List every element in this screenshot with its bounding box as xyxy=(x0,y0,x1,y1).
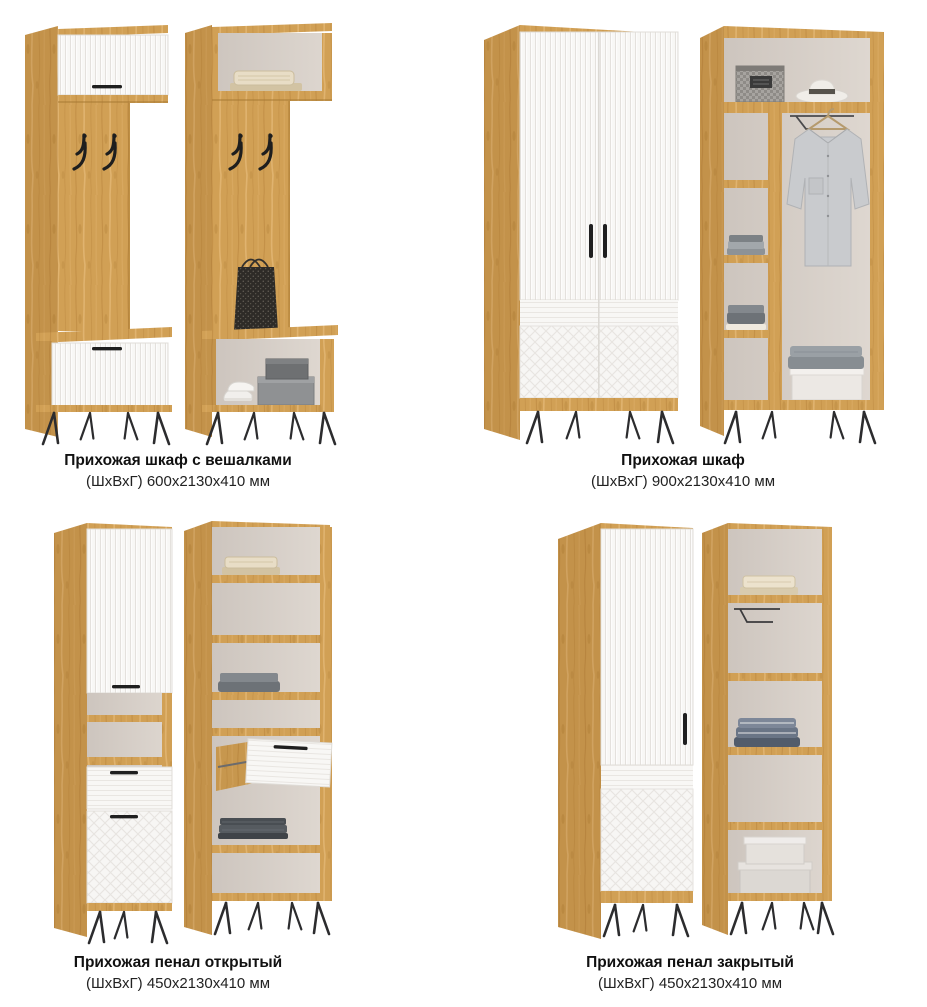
base xyxy=(728,893,832,901)
top-cabinet xyxy=(58,25,168,103)
divider xyxy=(768,113,782,400)
box-with-towels xyxy=(788,346,864,400)
hairpin-legs xyxy=(207,413,335,444)
door-handle-left xyxy=(589,224,593,258)
product-dimensions: (ШхВхГ) 450х2130х410 мм xyxy=(28,974,328,994)
hairpin-legs xyxy=(89,912,167,943)
product-card-penal-open[interactable] xyxy=(50,515,340,947)
hairpin-legs xyxy=(215,903,329,934)
doors xyxy=(520,32,678,398)
base xyxy=(520,398,678,411)
product-title: Прихожая пенал закрытый xyxy=(540,953,840,973)
product-card-hallway-set[interactable] xyxy=(20,15,336,447)
caption-hallway-set: Прихожая шкаф с вешалками (ШхВхГ) 600х21… xyxy=(20,451,336,492)
folded-textiles xyxy=(222,557,280,575)
product-image-wardrobe-closed xyxy=(480,12,682,446)
folded-jeans xyxy=(734,718,800,747)
catalog-page: Прихожая шкаф с вешалками (ШхВхГ) 600х21… xyxy=(0,0,927,1007)
caption-penal-closed: Прихожая пенал закрытый (ШхВхГ) 450х2130… xyxy=(540,953,840,994)
upper-door xyxy=(87,529,172,693)
product-title: Прихожая шкаф с вешалками xyxy=(20,451,336,471)
folded-textiles xyxy=(740,576,798,595)
product-image-hallway-set-closed xyxy=(20,15,172,447)
base xyxy=(724,400,870,410)
storage-boxes xyxy=(738,837,812,897)
product-title: Прихожая пенал открытый xyxy=(28,953,328,973)
product-dimensions: (ШхВхГ) 450х2130х410 мм xyxy=(540,974,840,994)
door-handle xyxy=(683,713,687,745)
drawer-handle xyxy=(110,771,138,774)
door-seam xyxy=(598,32,600,398)
open-niche xyxy=(87,693,172,767)
door-handle xyxy=(92,85,122,88)
folded-textiles xyxy=(726,305,766,330)
product-card-wardrobe[interactable] xyxy=(480,12,886,446)
hairpin-legs xyxy=(527,412,673,443)
caption-wardrobe: Прихожая шкаф (ШхВхГ) 900х2130х410 мм xyxy=(480,451,886,492)
base xyxy=(212,893,332,901)
basket xyxy=(736,66,784,102)
bench-open xyxy=(202,325,338,412)
top-cabinet-open xyxy=(212,23,332,101)
product-image-penal-open-closed xyxy=(50,515,175,947)
folded-blanket xyxy=(230,71,302,91)
hairpin-legs xyxy=(43,413,169,444)
drawer-handle xyxy=(92,347,122,350)
base xyxy=(601,891,693,903)
open-drawer xyxy=(216,739,332,791)
product-card-penal-closed[interactable] xyxy=(555,515,840,947)
hairpin-legs xyxy=(731,903,833,934)
product-image-wardrobe-open xyxy=(698,12,886,446)
storage-boxes xyxy=(258,359,314,405)
product-dimensions: (ШхВхГ) 600х2130х410 мм xyxy=(20,472,336,492)
door-handle-right xyxy=(603,224,607,258)
caption-penal-open: Прихожая пенал открытый (ШхВхГ) 450х2130… xyxy=(28,953,328,994)
hook-panel xyxy=(58,103,130,331)
folded-textiles xyxy=(218,673,280,692)
door-handle xyxy=(112,685,140,688)
product-image-penal-open-open xyxy=(182,515,340,947)
door-handle xyxy=(110,815,138,818)
product-image-penal-closed-closed xyxy=(555,515,697,947)
hairpin-legs xyxy=(604,905,688,936)
folded-textiles xyxy=(218,818,288,839)
bench xyxy=(36,327,172,412)
door xyxy=(601,529,693,891)
product-image-hallway-set-open xyxy=(182,15,338,447)
product-dimensions: (ШхВхГ) 900х2130х410 мм xyxy=(480,472,886,492)
base xyxy=(87,903,172,911)
product-title: Прихожая шкаф xyxy=(480,451,886,471)
gift-bag xyxy=(234,260,278,332)
product-image-penal-closed-open xyxy=(700,515,840,947)
lower-door xyxy=(87,811,172,903)
hairpin-legs xyxy=(725,412,875,443)
folded-textiles xyxy=(727,235,765,255)
